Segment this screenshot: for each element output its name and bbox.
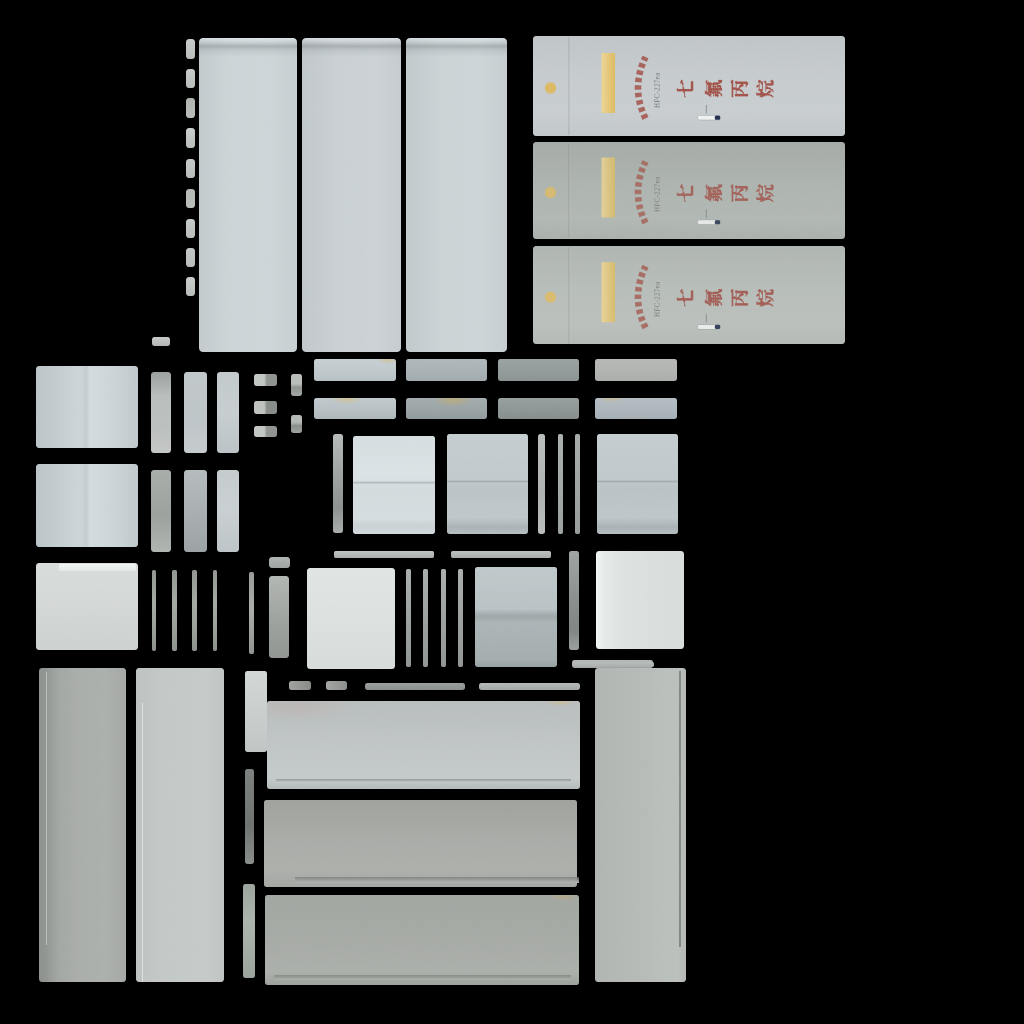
svg-text:HFC-227ea: HFC-227ea	[653, 176, 661, 212]
svg-text:HFC-227ea: HFC-227ea	[653, 72, 661, 108]
svg-text:HFC-227ea: HFC-227ea	[653, 281, 661, 317]
